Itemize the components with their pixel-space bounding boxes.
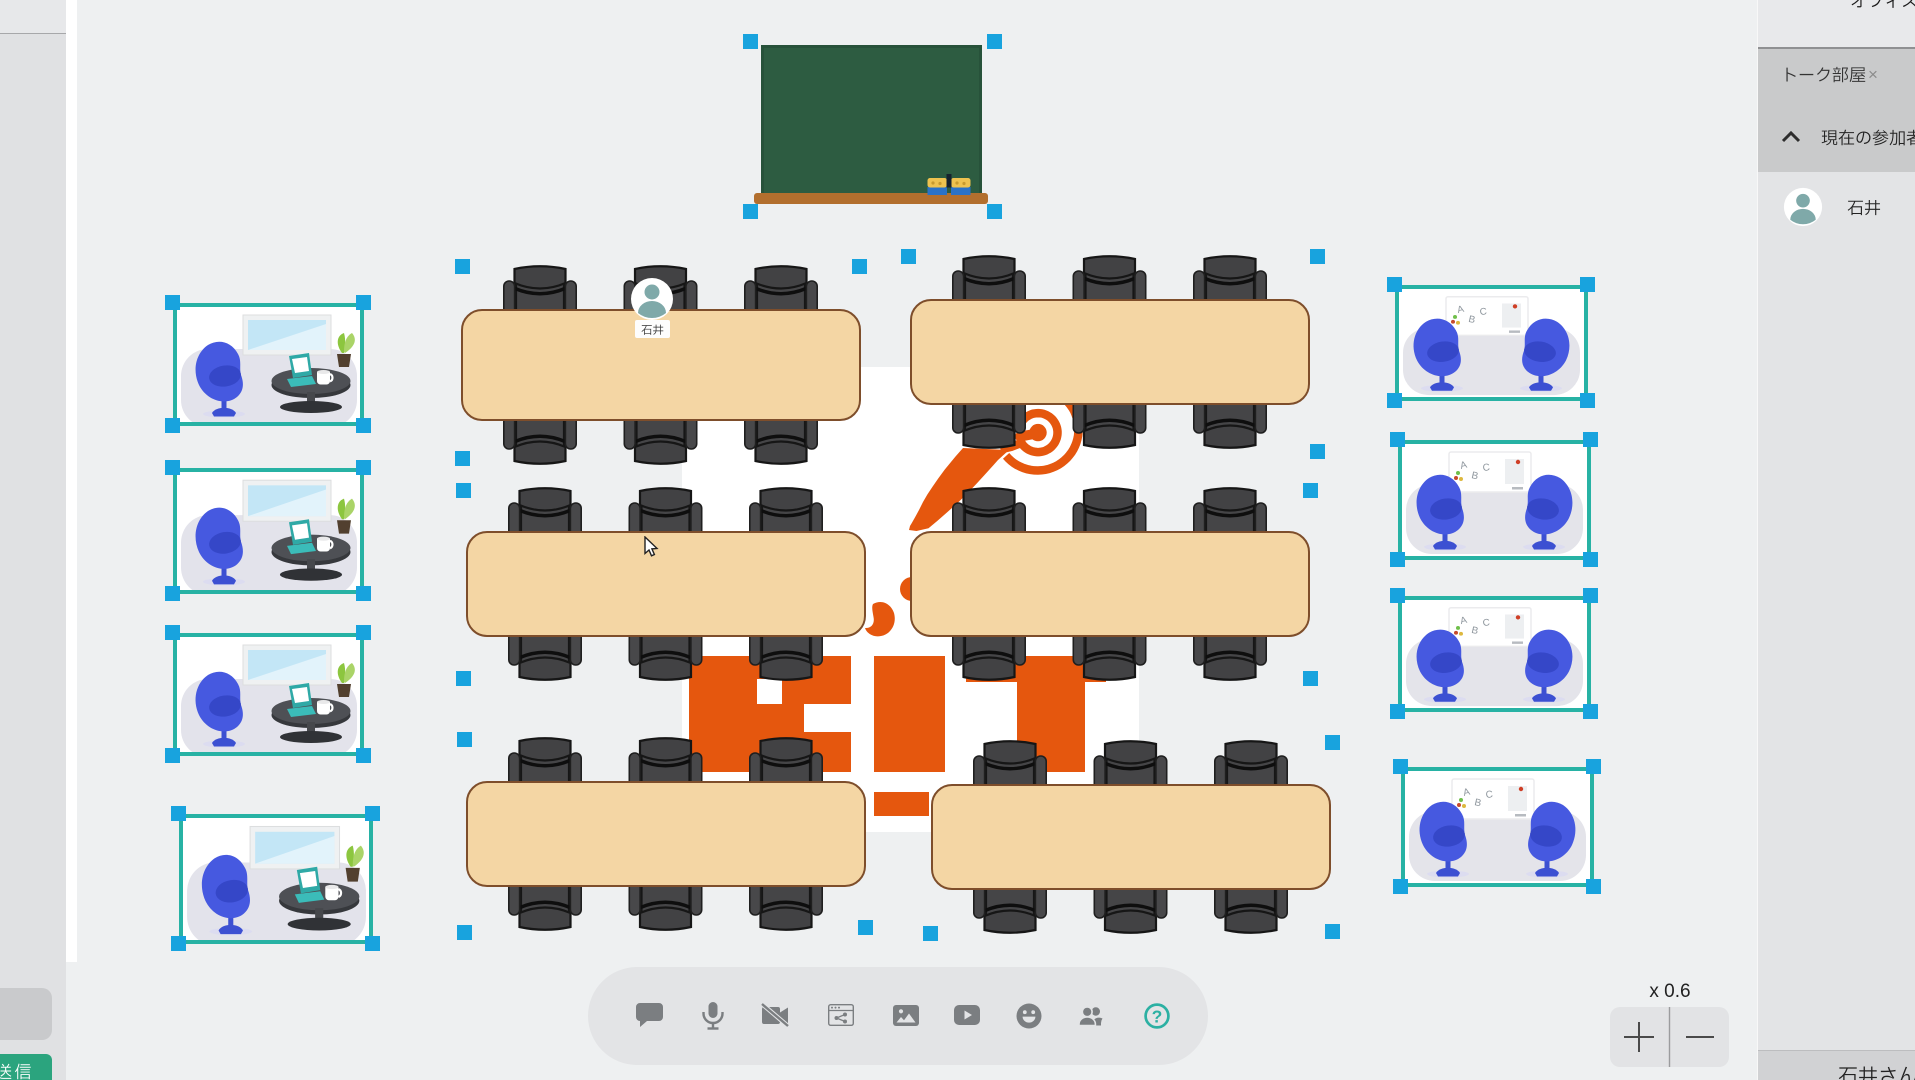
- svg-text:?: ?: [1152, 1006, 1163, 1026]
